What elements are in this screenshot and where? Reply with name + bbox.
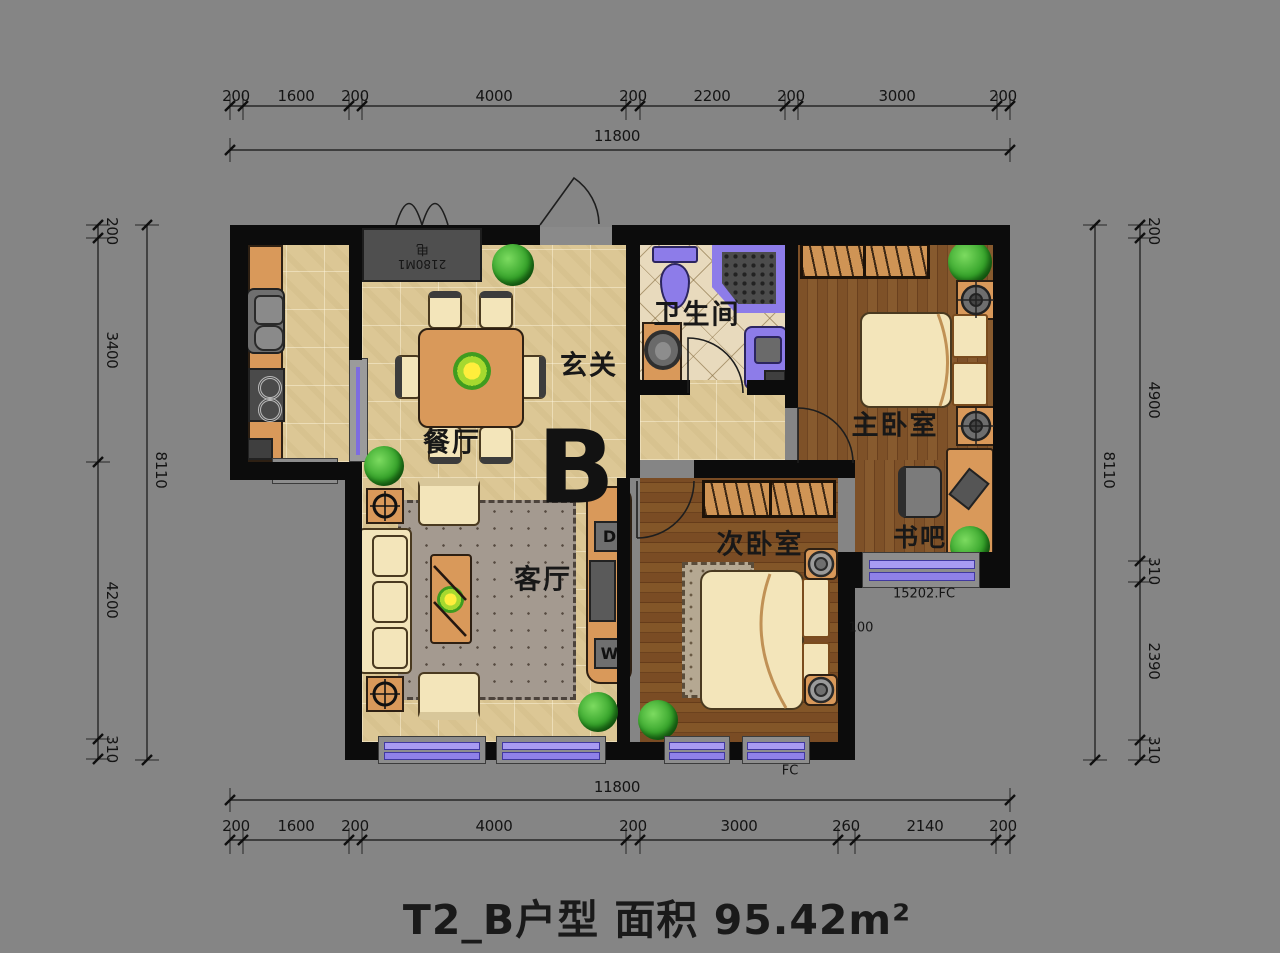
dim-top-total: 11800 — [594, 127, 640, 145]
secondary-window-1 — [664, 736, 730, 764]
window-glass — [669, 742, 725, 750]
plant — [638, 700, 678, 740]
entry-threshold — [540, 227, 612, 245]
wall-secondary-top-b — [694, 460, 855, 478]
kitchen-sink — [246, 288, 285, 354]
wall-living-left — [345, 462, 362, 760]
kitchen-appliance — [247, 438, 273, 460]
unit-letter: B — [537, 409, 615, 528]
dim-bottom-8: 200 — [989, 817, 1017, 835]
elevator-door-arcs — [396, 204, 448, 226]
living-window-1 — [378, 736, 486, 764]
living-window-2 — [496, 736, 606, 764]
burner-1 — [258, 376, 282, 400]
window-glass — [869, 560, 975, 569]
sink-inner — [655, 342, 671, 360]
wall-bath-bottom-b — [747, 380, 798, 395]
sink-basin-bottom — [254, 325, 284, 351]
dim-left-total: 8110 — [152, 452, 170, 489]
master-bedroom-label: 主卧室 — [852, 404, 939, 443]
wall-master-right — [993, 225, 1010, 588]
side-table — [366, 488, 404, 524]
dim-right-0: 200 — [1145, 217, 1163, 245]
plant — [492, 244, 534, 286]
sofa-cushion — [372, 535, 408, 577]
plant — [948, 240, 992, 284]
dim-top-2: 200 — [341, 87, 369, 105]
wall-bathroom-left — [626, 225, 640, 478]
tv-set — [589, 560, 616, 622]
bathroom-label: 卫生间 — [654, 293, 741, 332]
offset-note: 100 — [849, 621, 874, 636]
window-glass — [384, 742, 480, 750]
wall-top-right — [612, 225, 1010, 245]
dim-top-0: 200 — [222, 87, 250, 105]
dining-chair — [428, 291, 462, 329]
dim-left-1: 3400 — [103, 332, 121, 369]
dining-chair — [479, 426, 513, 464]
side-table — [366, 676, 404, 712]
bed-cushion — [952, 314, 988, 358]
dim-bottom-1: 1600 — [278, 817, 315, 835]
entrance-label: 玄关 — [560, 344, 618, 383]
dim-left-3: 310 — [103, 735, 121, 763]
table-centerpiece-flower — [453, 352, 491, 390]
sofa-cushion — [372, 627, 408, 669]
dim-bottom-4: 200 — [619, 817, 647, 835]
dim-top-1: 1600 — [278, 87, 315, 105]
armchair — [418, 478, 480, 526]
master-bay-window — [862, 552, 980, 588]
glass-door-line — [356, 367, 360, 455]
wall-kitchen-divider — [349, 225, 362, 360]
nightstand — [804, 548, 838, 580]
dim-bottom-6: 260 — [832, 817, 860, 835]
bay-window-note: 15202.FC — [893, 587, 955, 602]
dim-bottom-0: 200 — [222, 817, 250, 835]
dim-top-3: 4000 — [476, 87, 513, 105]
fridge-niche — [349, 358, 368, 462]
elevator-label: 电 — [415, 239, 429, 255]
desk-chair — [898, 466, 942, 518]
dim-top-6: 200 — [777, 87, 805, 105]
dim-top-7: 3000 — [879, 87, 916, 105]
wardrobe-divider — [863, 246, 866, 276]
dvd-label: D — [603, 527, 616, 546]
dim-right-total: 8110 — [1100, 452, 1118, 489]
dim-bottom-3: 4000 — [476, 817, 513, 835]
dim-left-2: 4200 — [103, 582, 121, 619]
window-glass — [502, 752, 600, 760]
dim-left-0: 200 — [103, 217, 121, 245]
window-glass — [747, 752, 805, 760]
dim-bottom-total: 11800 — [594, 778, 640, 796]
dim-top-4: 200 — [619, 87, 647, 105]
elevator-number: 2180M1 — [398, 256, 447, 271]
window-glass — [502, 742, 600, 750]
av-label: W — [601, 644, 619, 663]
toilet-tank — [652, 246, 698, 263]
dim-right-3: 2390 — [1145, 643, 1163, 680]
dim-top-5: 2200 — [694, 87, 731, 105]
burner-2 — [258, 398, 282, 422]
wardrobe-divider — [769, 483, 772, 515]
plan-title: T2_B户型 面积 95.42m² — [403, 886, 911, 946]
wall-bath-bottom-a — [626, 380, 690, 395]
dim-right-2: 310 — [1145, 557, 1163, 585]
plant — [578, 692, 618, 732]
kitchen-stove — [248, 368, 285, 422]
book-bar-label: 书吧 — [893, 518, 947, 554]
wall-living-divider — [617, 478, 630, 742]
speaker-stand — [956, 406, 996, 446]
secondary-bed — [700, 570, 804, 710]
window-glass — [384, 752, 480, 760]
nightstand — [804, 674, 838, 706]
window-glass — [869, 572, 975, 581]
armchair — [418, 672, 480, 720]
wall-secondary-top-a — [626, 460, 637, 478]
coffee-table-flower — [437, 586, 464, 613]
sink-basin-top — [254, 295, 284, 325]
dim-right-1: 4900 — [1145, 382, 1163, 419]
dim-bottom-2: 200 — [341, 817, 369, 835]
entry-door-arc — [540, 178, 599, 225]
plant — [364, 446, 404, 486]
window-glass — [669, 752, 725, 760]
floor-plan-canvas: D W — [0, 0, 1280, 953]
living-label: 客厅 — [514, 558, 572, 597]
bath-sink — [644, 330, 682, 370]
window-glass — [747, 742, 805, 750]
washer-lid — [754, 336, 782, 364]
fc-note: FC — [782, 764, 799, 779]
master-wardrobe — [800, 243, 930, 279]
dim-right-4: 310 — [1145, 736, 1163, 764]
dining-label: 餐厅 — [423, 421, 481, 460]
secondary-wardrobe — [702, 480, 836, 518]
dim-bottom-7: 2140 — [907, 817, 944, 835]
bed-cushion — [802, 578, 830, 638]
bed-cushion — [952, 362, 988, 406]
wall-kitchen-bottom — [230, 462, 362, 480]
secondary-window-2 — [742, 736, 810, 764]
master-bed — [860, 312, 952, 408]
dim-bottom-5: 3000 — [721, 817, 758, 835]
sofa-cushion — [372, 581, 408, 623]
dining-chair — [479, 291, 513, 329]
sofa — [358, 528, 412, 674]
secondary-bedroom-label: 次卧室 — [717, 523, 804, 562]
living-rug — [398, 500, 576, 700]
dim-top-8: 200 — [989, 87, 1017, 105]
wall-left — [230, 225, 248, 480]
elevator-shaft: 2180M1 电 — [362, 228, 482, 282]
